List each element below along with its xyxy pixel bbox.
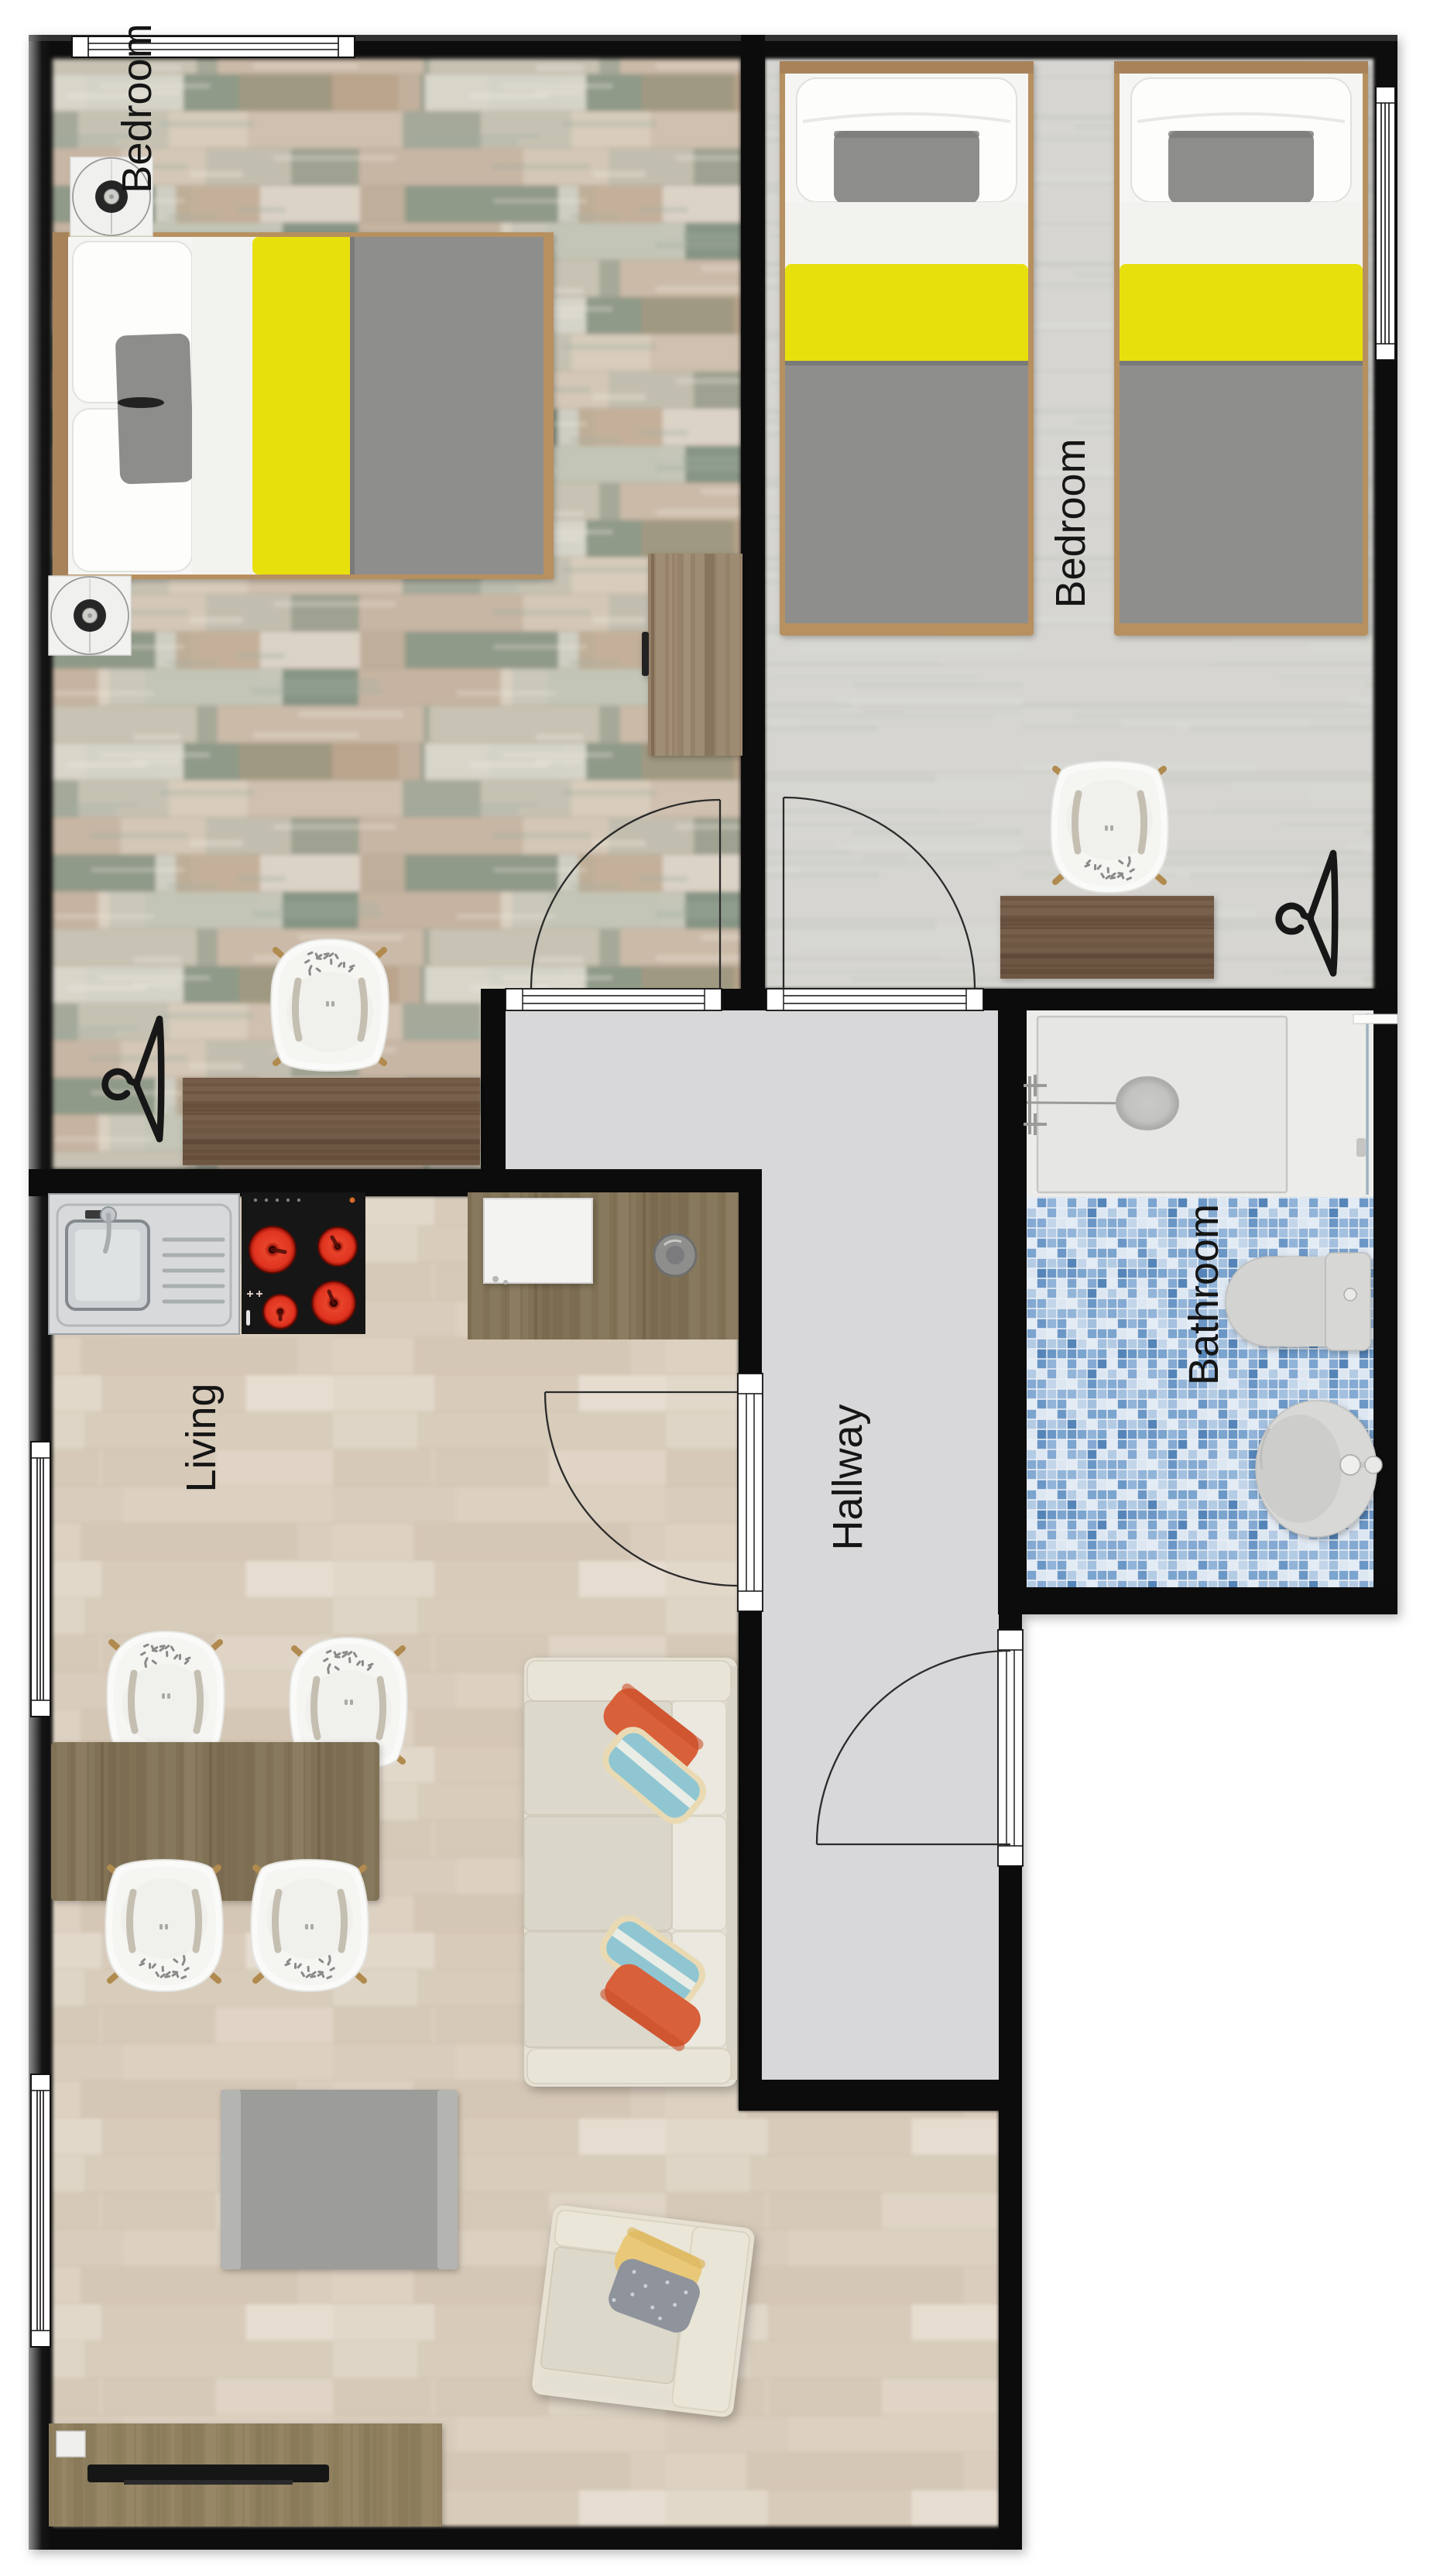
svg-text:Bathroom: Bathroom xyxy=(1181,1204,1227,1385)
svg-text:Bedroom: Bedroom xyxy=(114,23,160,193)
svg-text:Hallway: Hallway xyxy=(825,1404,871,1550)
svg-text:Living: Living xyxy=(178,1383,225,1492)
svg-text:Bedroom: Bedroom xyxy=(1048,438,1094,608)
